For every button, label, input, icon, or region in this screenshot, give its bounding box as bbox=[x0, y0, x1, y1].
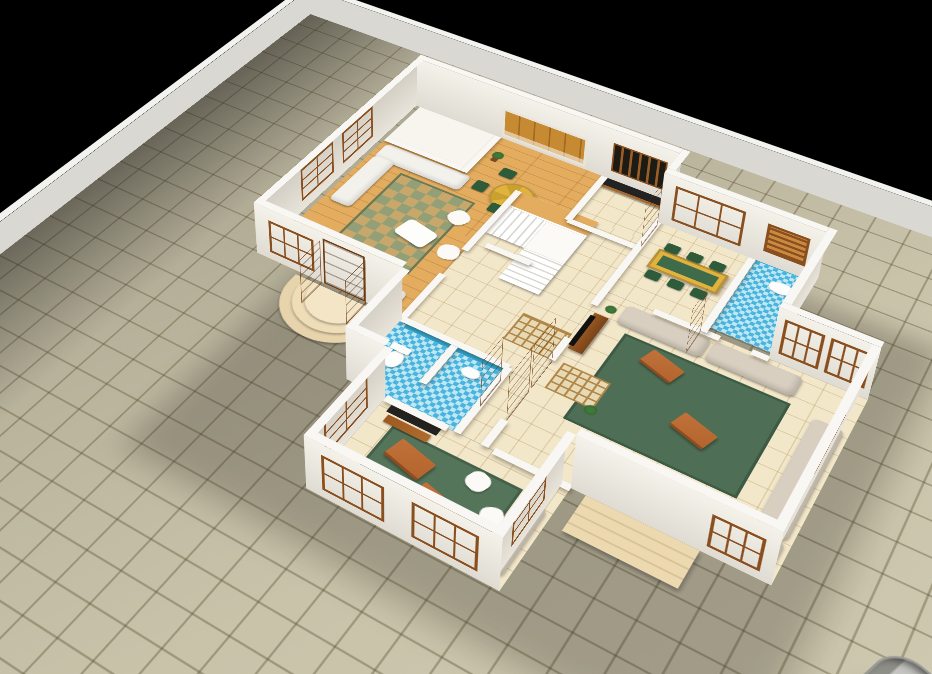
render-viewport bbox=[0, 0, 932, 674]
scene-world bbox=[0, 0, 932, 674]
window-family-north-1 bbox=[778, 319, 825, 369]
louver-window-bath1 bbox=[763, 223, 810, 266]
window-family-south bbox=[707, 514, 767, 572]
